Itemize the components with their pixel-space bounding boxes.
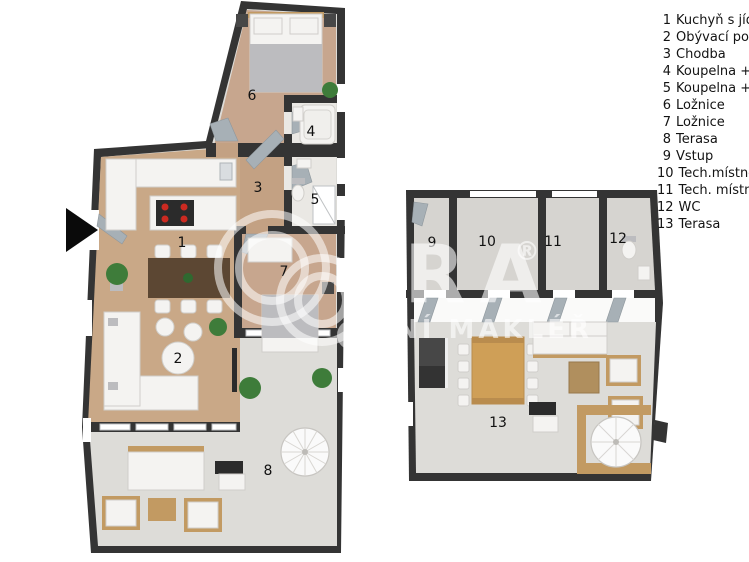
door-opening — [284, 166, 292, 190]
legend-label: WC — [679, 200, 701, 215]
legend-label: Tech. místn — [679, 183, 749, 198]
plant-icon — [312, 368, 332, 388]
legend-label: Tech.místno — [679, 166, 749, 181]
terrace-glass-door — [174, 424, 206, 430]
legend-num: 13 — [657, 216, 674, 233]
legend-item: 1Kuchyň s jíd — [657, 12, 749, 29]
legend-num: 9 — [657, 148, 671, 165]
legend: 1Kuchyň s jíd 2Obývací pok 3Chodba 4Koup… — [657, 12, 749, 233]
legend-num: 6 — [657, 97, 671, 114]
legend-label: Ložnice — [676, 98, 725, 113]
room-label-2: 2 — [174, 351, 183, 367]
terrace-glass-door — [100, 424, 130, 430]
legend-label: Koupelna + — [676, 81, 749, 96]
plant-icon — [209, 318, 227, 336]
terrace-glass-door — [136, 424, 168, 430]
outdoor-sofa — [128, 446, 204, 490]
legend-num: 10 — [657, 165, 674, 182]
outdoor-coffee-table — [148, 498, 176, 521]
legend-num: 11 — [657, 182, 674, 199]
outdoor-chair — [102, 496, 140, 530]
room-label-5: 5 — [311, 192, 320, 208]
bathtub — [300, 105, 335, 144]
window — [470, 191, 536, 197]
wall — [599, 198, 607, 290]
legend-item: 2Obývací pok — [657, 29, 749, 46]
room-label-8: 8 — [264, 463, 273, 479]
window — [83, 418, 91, 442]
bed-double — [236, 12, 336, 92]
legend-label: Kuchyň s jíd — [676, 13, 749, 28]
spiral-staircase — [281, 428, 329, 476]
outdoor-kitchen-unit — [419, 338, 448, 388]
room-label-3: 3 — [254, 180, 263, 196]
legend-num: 5 — [657, 80, 671, 97]
legend-item: 9Vstup — [657, 148, 749, 165]
window — [337, 84, 345, 112]
legend-item: 3Chodba — [657, 46, 749, 63]
legend-item: 10Tech.místno — [657, 165, 749, 182]
plant-icon — [322, 82, 338, 98]
legend-item: 13Terasa — [657, 216, 749, 233]
legend-label: Terasa — [676, 132, 718, 147]
door-opening — [216, 143, 238, 157]
legend-item: 11Tech. místn — [657, 182, 749, 199]
window — [337, 158, 345, 184]
window — [338, 368, 346, 392]
plant-icon — [239, 377, 261, 399]
window — [337, 196, 345, 220]
legend-num: 4 — [657, 63, 671, 80]
floor-plan-graphic: 1 2 3 4 5 6 7 8 — [0, 0, 749, 562]
legend-num: 1 — [657, 12, 671, 29]
legend-item: 4Koupelna + — [657, 63, 749, 80]
legend-label: Obývací pok — [676, 30, 749, 45]
legend-item: 8Terasa — [657, 131, 749, 148]
legend-num: 3 — [657, 46, 671, 63]
legend-num: 2 — [657, 29, 671, 46]
grill — [215, 461, 245, 490]
wall — [284, 95, 345, 103]
legend-num: 7 — [657, 114, 671, 131]
outdoor-chair — [606, 355, 641, 386]
legend-item: 7Ložnice — [657, 114, 749, 131]
window — [405, 402, 413, 426]
legend-num: 8 — [657, 131, 671, 148]
door-opening — [553, 290, 575, 298]
room-label-12: 12 — [609, 231, 627, 247]
sink — [638, 266, 650, 280]
tv — [232, 348, 237, 392]
outdoor-chair — [184, 498, 222, 532]
legend-item: 12WC — [657, 199, 749, 216]
toilet — [292, 178, 305, 201]
floor-plan-canvas: 1 2 3 4 5 6 7 8 — [0, 0, 749, 562]
wall — [653, 420, 668, 443]
pouf — [156, 318, 174, 336]
sink — [297, 159, 311, 168]
legend-item: 5Koupelna + — [657, 80, 749, 97]
window — [552, 191, 597, 197]
window — [84, 300, 92, 336]
terrace-glass-door — [212, 424, 236, 430]
grill — [529, 402, 558, 432]
room-label-13: 13 — [489, 415, 507, 431]
legend-label: Ložnice — [676, 115, 725, 130]
legend-label: Chodba — [676, 47, 726, 62]
kitchen-island-hob — [150, 196, 236, 230]
room-label-6: 6 — [248, 88, 257, 104]
pouf — [184, 323, 202, 341]
watermark-tagline: NÍ MAKLÉŘ — [396, 313, 593, 345]
legend-label: Terasa — [679, 217, 721, 232]
watermark-registered: ® — [514, 237, 540, 267]
legend-label: Koupelna + — [676, 64, 749, 79]
room-label-4: 4 — [307, 124, 316, 140]
outdoor-rug — [569, 362, 599, 393]
door-opening — [612, 290, 634, 298]
room-label-1: 1 — [178, 235, 187, 251]
door-opening — [284, 112, 292, 134]
legend-label: Vstup — [676, 149, 713, 164]
legend-item: 6Ložnice — [657, 97, 749, 114]
legend-num: 12 — [657, 199, 674, 216]
sink — [293, 107, 303, 121]
